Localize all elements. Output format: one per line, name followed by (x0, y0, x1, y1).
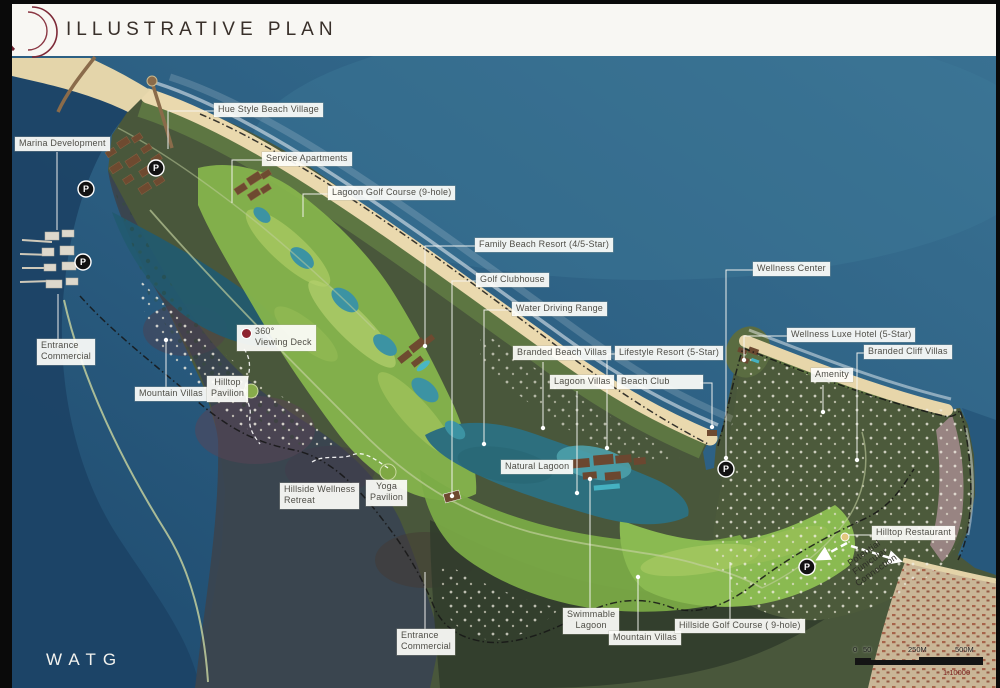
frame-left (0, 0, 12, 688)
illustrative-plan-page: PPPPP Hue Style Beach VillageMarina Deve… (0, 0, 1000, 688)
parking-letter: P (723, 464, 729, 474)
hilltop-restaurant-site (841, 533, 849, 541)
beach-club-building (707, 430, 717, 436)
watg-logo: WATG (46, 650, 123, 670)
parking-letter: P (83, 184, 89, 194)
parking-letter: P (153, 163, 159, 173)
parking-letter: P (804, 562, 810, 572)
frame-right (996, 0, 1000, 688)
scale-fifty: 50 (863, 645, 871, 654)
page-title: ILLUSTRATIVE PLAN (66, 19, 338, 41)
brand-arc-icon (6, 4, 62, 60)
scale-zero: 0 (853, 645, 857, 654)
header-band: ILLUSTRATIVE PLAN (12, 4, 996, 56)
parking-letter: P (80, 257, 86, 267)
scale-mid: 250M (908, 645, 927, 654)
scale-ratio: 1:10000 (943, 668, 970, 677)
frame-top (0, 0, 1000, 4)
scale-end: 500M (955, 645, 974, 654)
yoga-pavilion-site (380, 464, 396, 480)
